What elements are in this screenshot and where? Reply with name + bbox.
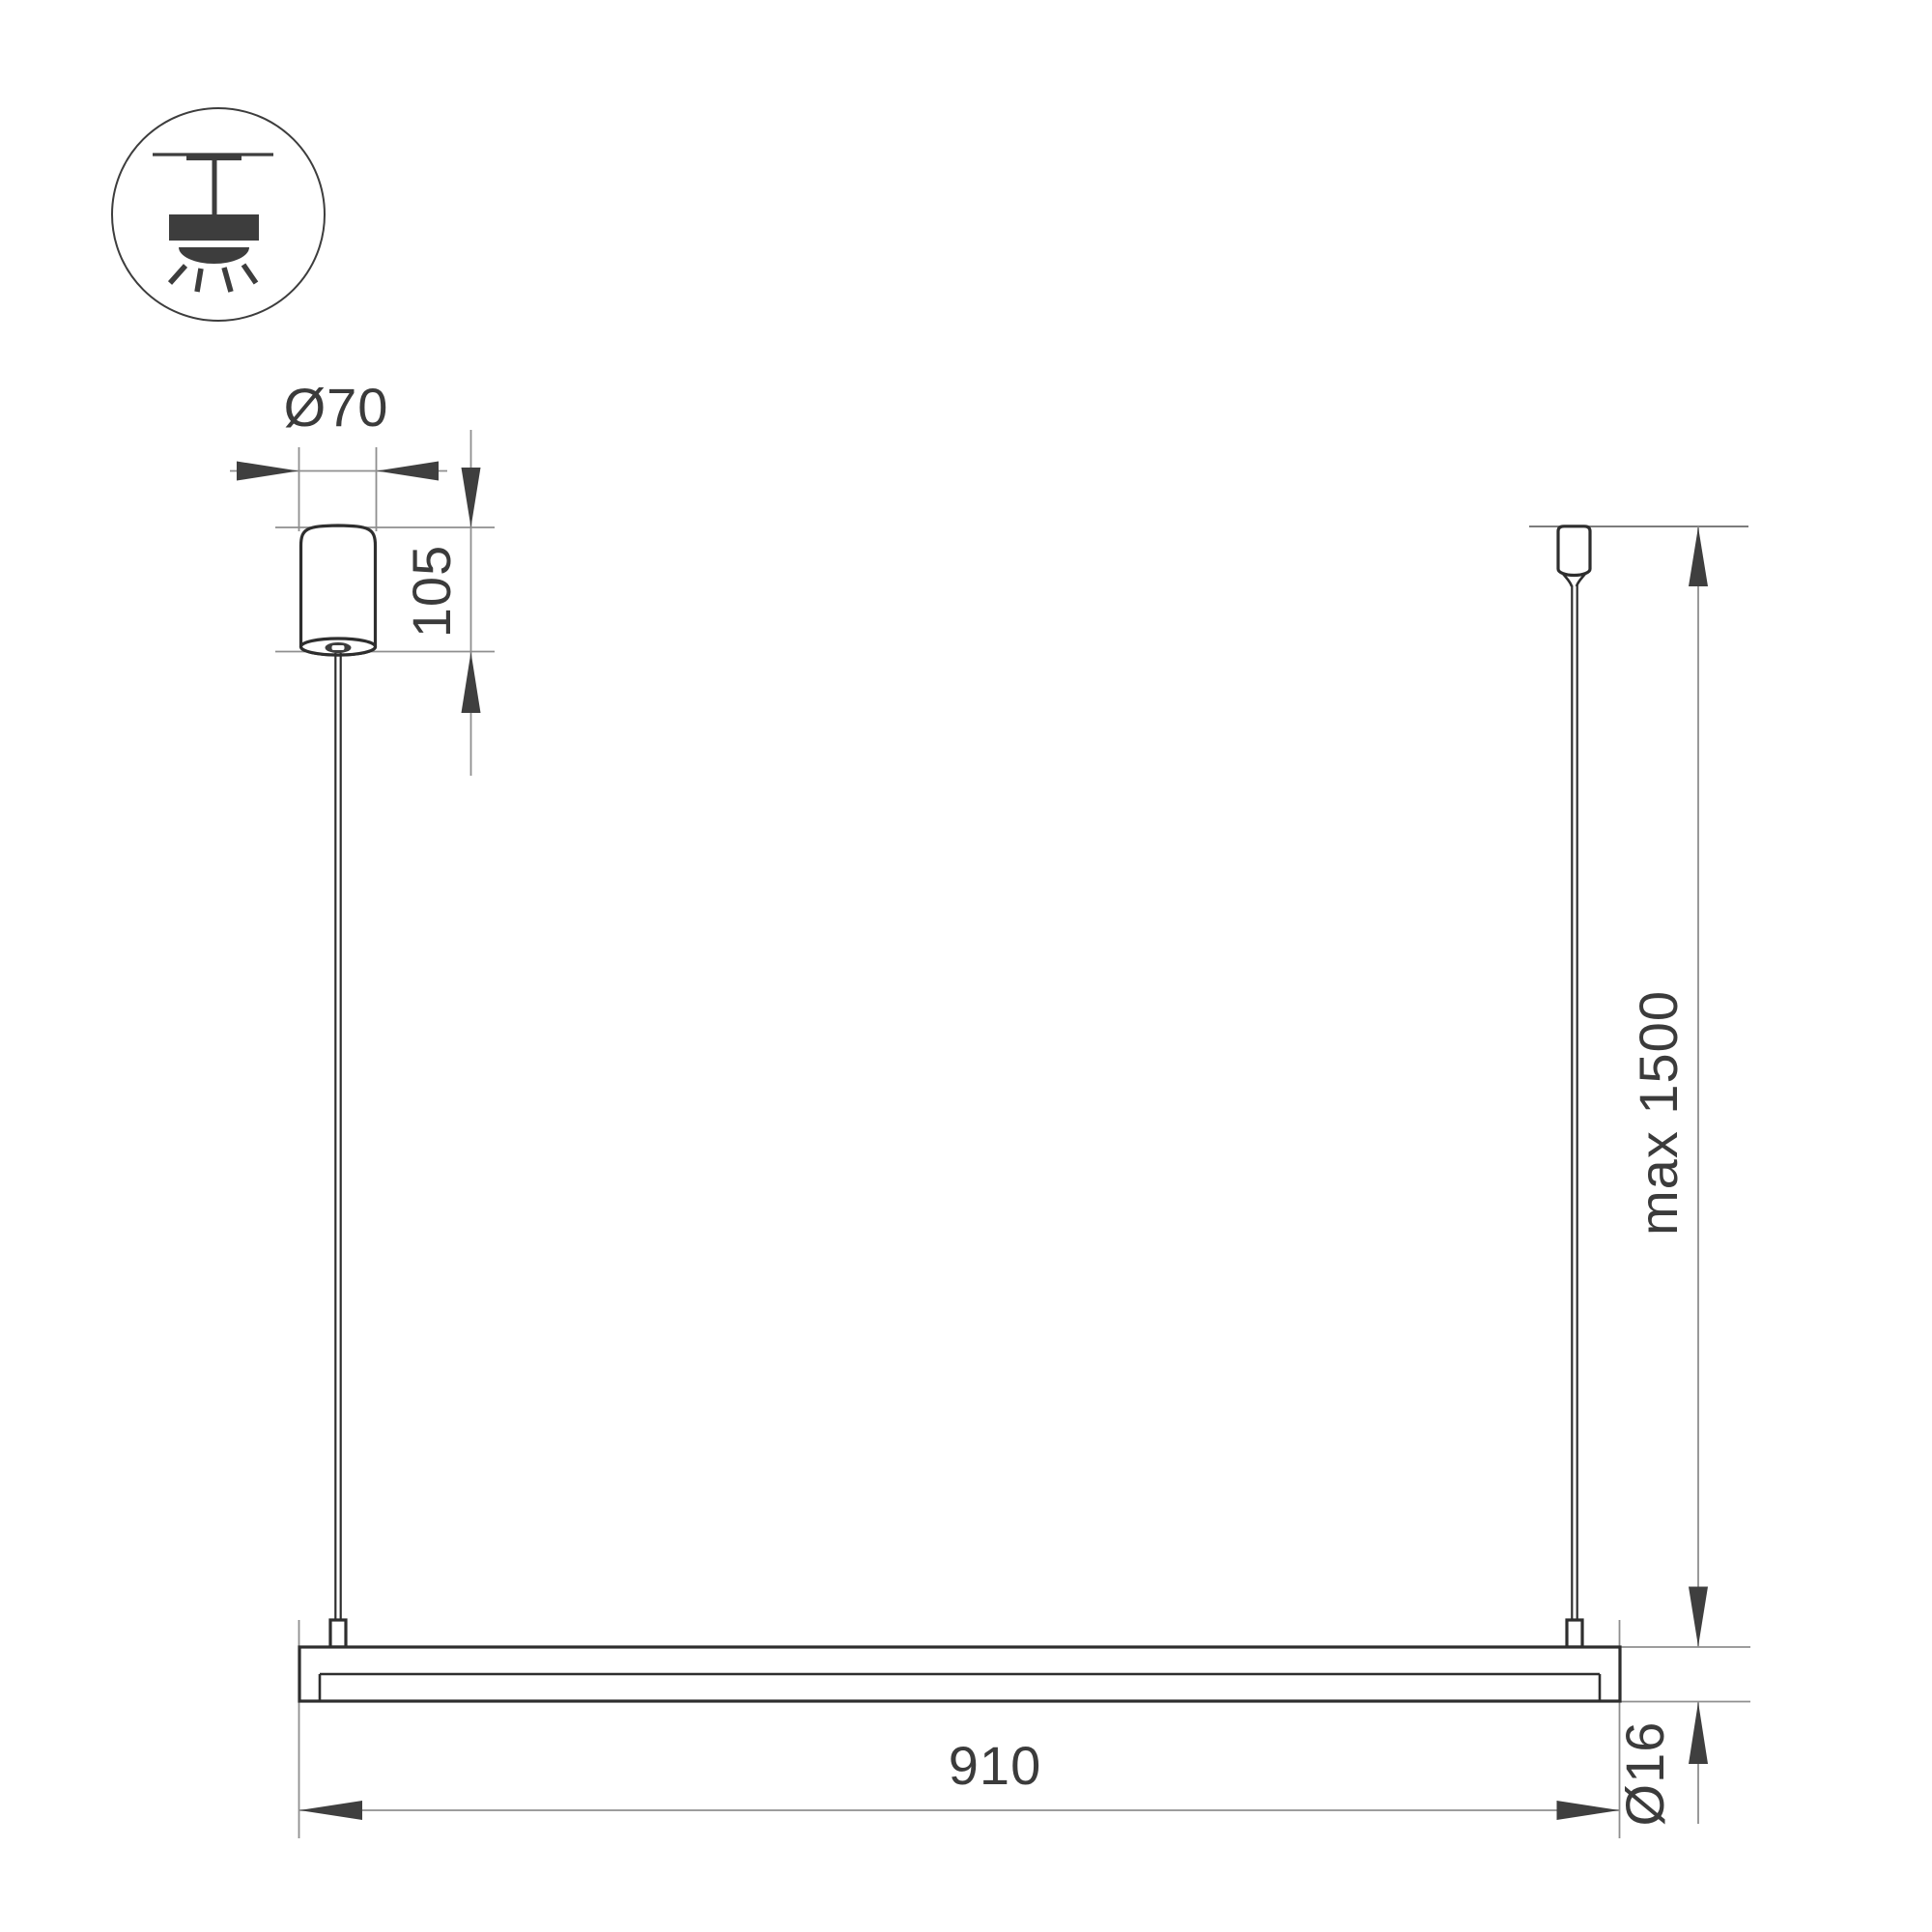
cable-gland-slot [332,645,345,650]
pendant-luminaire-dimension-drawing: Ø70 105 max 1500 Ø16 910 [0,0,1932,1932]
canopy-height-arrow-bottom [462,652,481,713]
suspension-cable-left [335,653,340,1623]
canopy-height-label: 105 [401,545,462,638]
dimension-arrows [237,462,1708,1821]
fixture-length-arrow-right [1557,1801,1620,1820]
ceiling-canopy [301,526,376,655]
icon-mount-plate [186,155,241,160]
canopy-diameter-arrow-left [237,462,298,481]
tube-diameter-label: Ø16 [1614,1721,1675,1827]
canopy-diameter-label: Ø70 [284,377,389,438]
cable-gripper-left [330,1620,346,1647]
tube-diameter-arrow-bottom [1689,1702,1708,1764]
pendant-ceiling-light-icon [112,108,325,321]
canopy-body [301,526,376,655]
suspension-arrow-bottom [1689,1587,1708,1647]
icon-lamp-body [169,214,259,241]
icon-light-rays [170,265,256,292]
cup-body [1558,526,1590,569]
suspension-arrow-top [1689,527,1708,587]
suspension-cable-right [1572,585,1577,1623]
fixture-length-label: 910 [949,1735,1041,1796]
ceiling-cup-right [1558,526,1590,586]
canopy-diameter-arrow-right [377,462,439,481]
luminaire-bar [299,1647,1620,1701]
suspension-length-label: max 1500 [1628,990,1689,1236]
canopy-height-arrow-top [462,468,481,527]
icon-lamp-dome [179,247,249,264]
icon-stem [213,160,217,214]
fixture-length-arrow-left [299,1801,362,1820]
extension-lines [230,430,1750,1838]
cable-gripper-right [1567,1620,1582,1647]
